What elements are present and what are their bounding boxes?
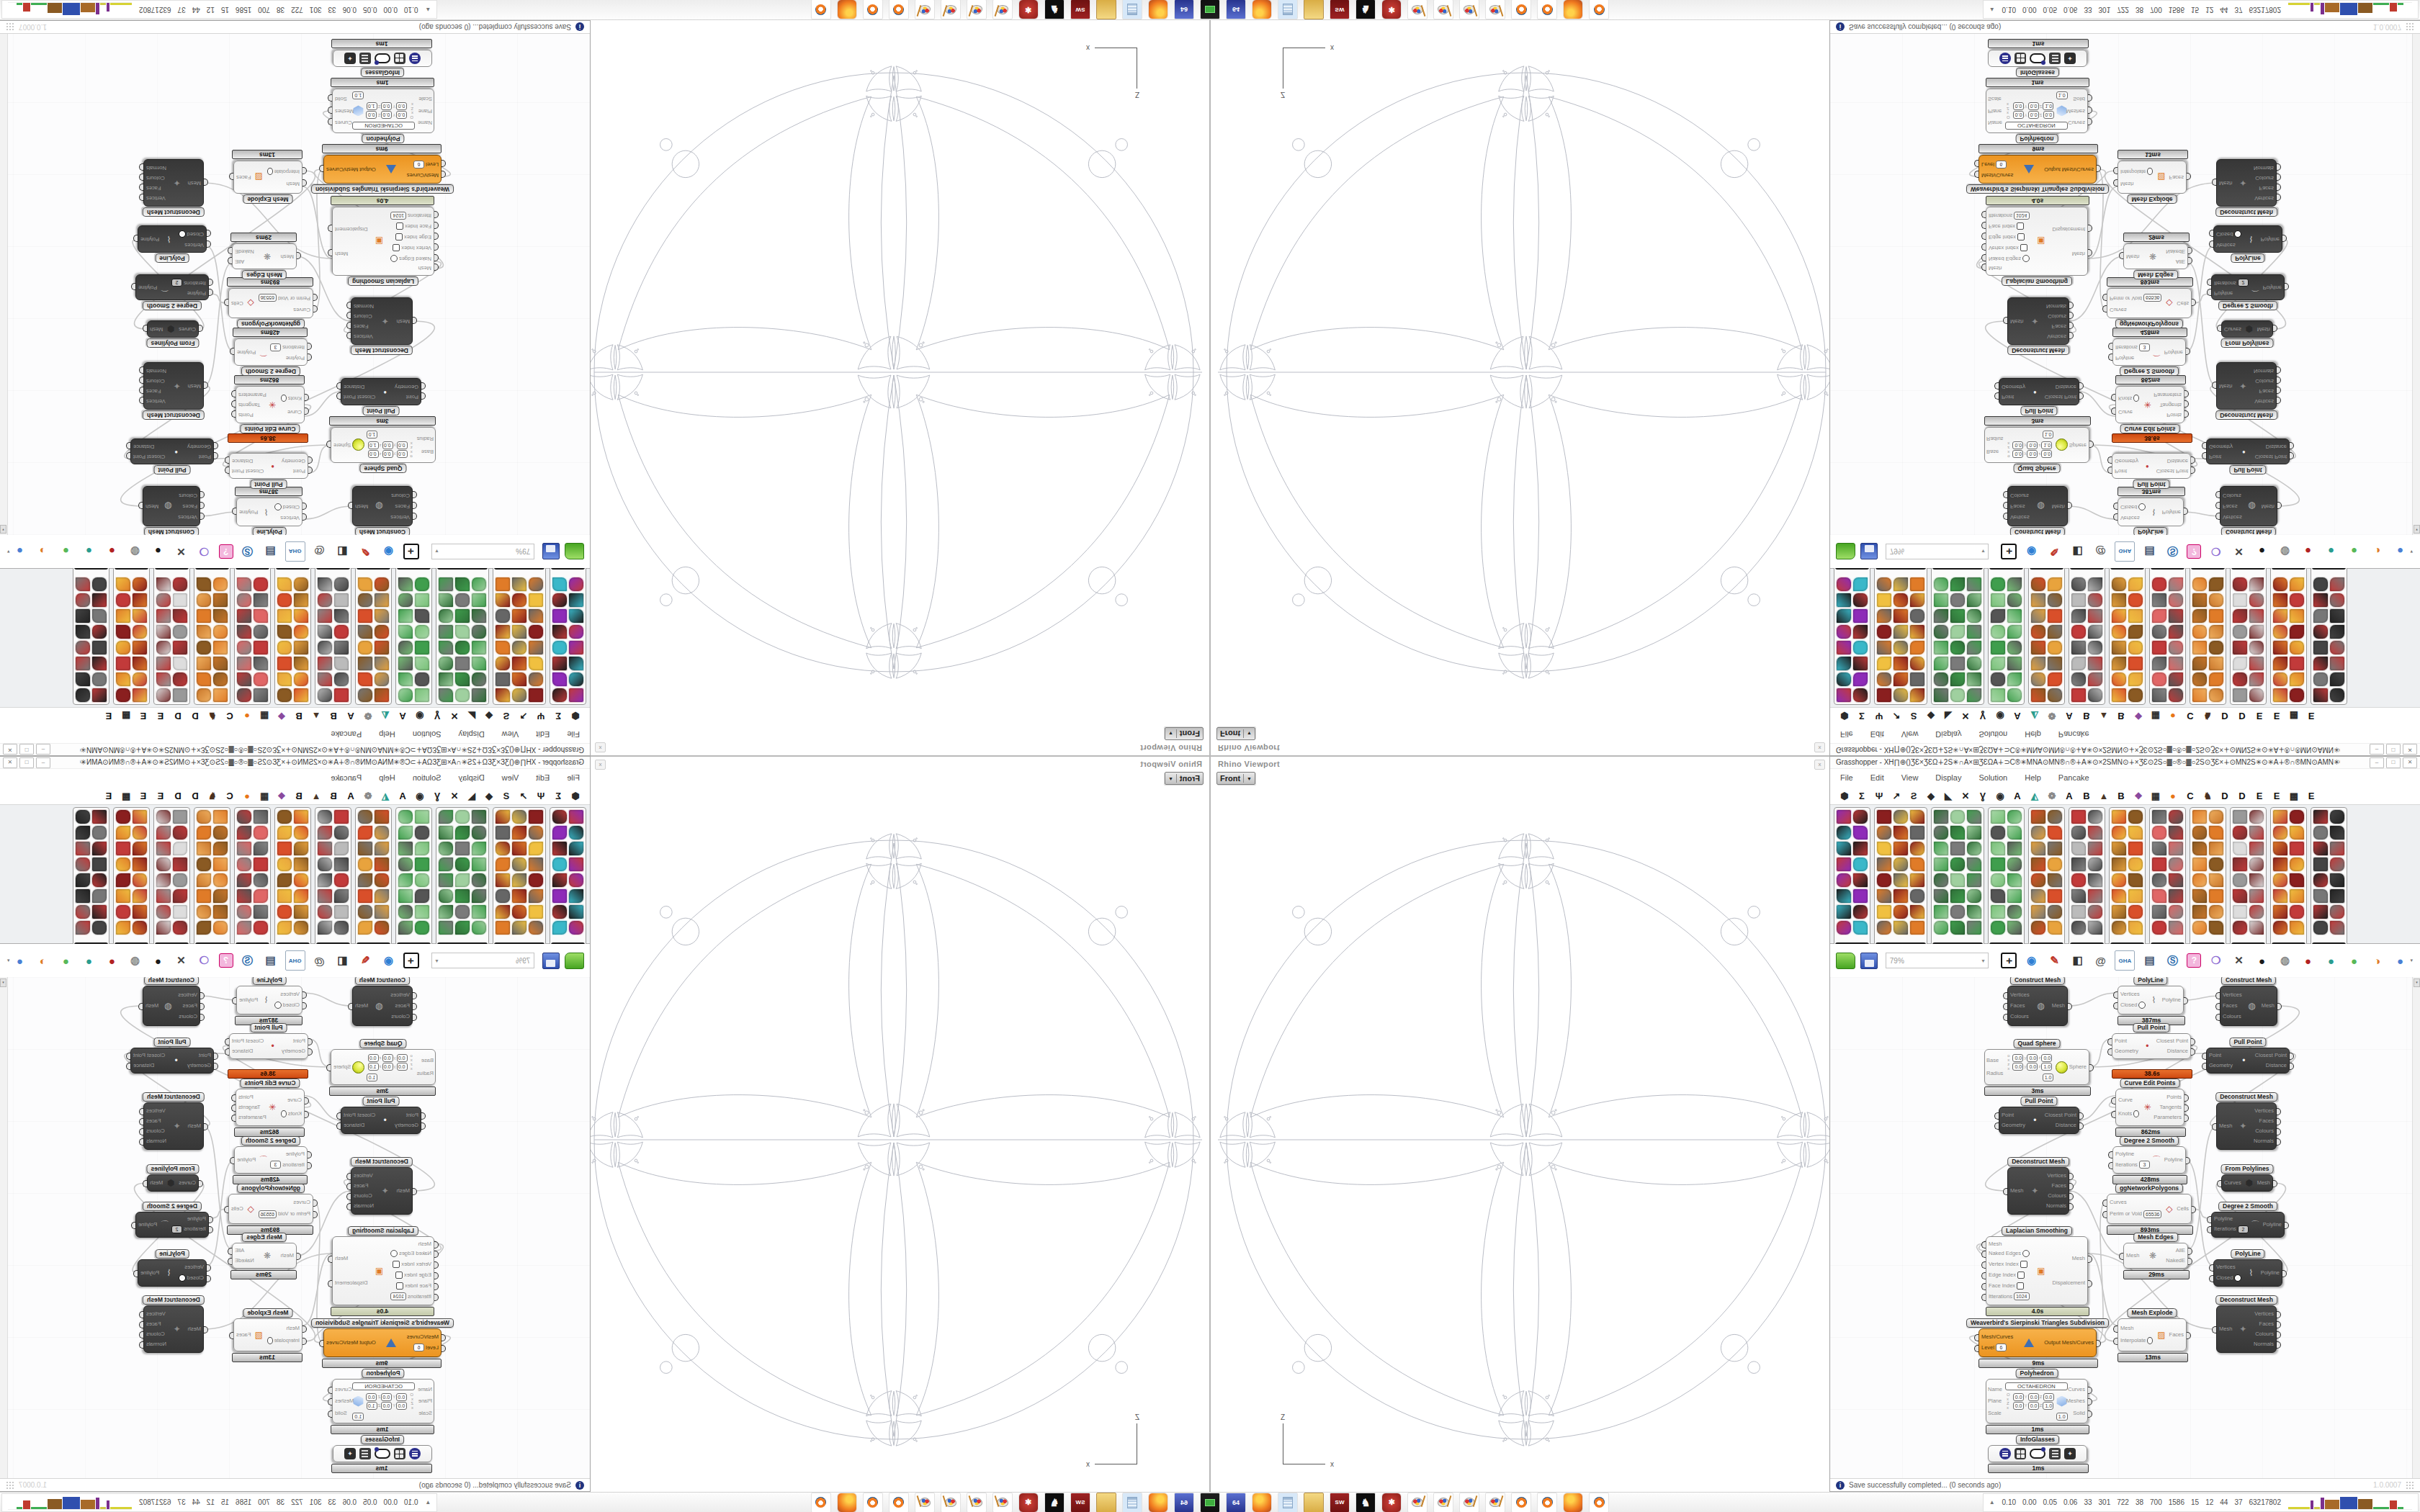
gh-port-faces[interactable]: Faces (2259, 185, 2274, 191)
gh-port-alle[interactable]: AllE (2176, 258, 2185, 264)
palette-icon[interactable] (1909, 577, 1925, 592)
palette-icon[interactable] (2249, 920, 2264, 935)
palette-icon[interactable] (1909, 593, 1925, 608)
palette-icon[interactable] (568, 857, 584, 872)
gh-canvas[interactable]: Construct MeshVerticesFacesColours◍MeshQ… (7, 33, 590, 535)
gh-port-vertices[interactable]: Vertices (2120, 515, 2146, 521)
plane-value-field[interactable]: 0.0 (382, 451, 393, 459)
plane-value-field[interactable]: 0.0 (2028, 1393, 2039, 1401)
category-tab-icon[interactable]: A (2061, 711, 2078, 722)
palette-icon[interactable] (2087, 672, 2103, 687)
gh-node-label[interactable]: Pull Point (250, 1023, 287, 1032)
canvas-scrollbar[interactable]: ▾ (2412, 977, 2420, 1479)
category-tab-icon[interactable]: ◉ (411, 791, 429, 801)
gh-port-polyline[interactable]: Polyline (2214, 290, 2246, 296)
paint-icon[interactable] (915, 0, 935, 20)
palette-icon[interactable] (236, 608, 252, 624)
palette-icon[interactable] (1933, 920, 1949, 935)
gh-port-base[interactable]: Base (1986, 1058, 2003, 1063)
gh-node-label[interactable]: ggNetworkPolygons (237, 319, 305, 328)
gh-port-iterations[interactable]: Iterations3 (272, 1161, 305, 1169)
gh-node-degree-2-smooth[interactable]: PolylineIterations2⌒Polyline (2211, 274, 2285, 300)
gh-port-level[interactable]: Level6 (1981, 1344, 2013, 1351)
gh-port-mesh[interactable]: Mesh (390, 265, 431, 271)
gh-port-mesh[interactable]: Mesh (390, 1241, 431, 1247)
gh-port-iterations[interactable]: Iterations2 (2214, 1225, 2246, 1233)
gh-port-geometry[interactable]: Geometry (395, 384, 418, 390)
category-tab-icon[interactable]: A (2009, 711, 2026, 722)
gh-node-label[interactable]: Construct Mesh (2010, 977, 2065, 985)
gh-port-closed[interactable]: Closed (179, 230, 204, 238)
palette-icon[interactable] (1852, 904, 1868, 919)
remote-at-icon[interactable]: @ (2092, 543, 2109, 560)
category-tab-icon[interactable]: B (2112, 791, 2130, 801)
palette-icon[interactable] (1966, 593, 1982, 608)
palette-icon[interactable] (1966, 841, 1982, 856)
palette-icon[interactable] (2128, 656, 2143, 671)
palette-icon[interactable] (212, 825, 228, 840)
category-tab-icon[interactable]: E (2251, 791, 2268, 801)
gh-port-geometry[interactable]: Geometry (282, 458, 305, 464)
gh-port-colours[interactable]: Colours (2048, 1193, 2066, 1199)
gh-node-label[interactable]: Construct Mesh (2221, 527, 2276, 535)
palette-icon[interactable] (2329, 688, 2345, 703)
palette-icon[interactable] (2289, 624, 2305, 639)
palette-icon[interactable] (1909, 857, 1925, 872)
palette-icon[interactable] (2151, 825, 2167, 840)
gh-port-mesh[interactable]: Mesh (1989, 1241, 2030, 1247)
category-tab-icon[interactable]: A (2009, 791, 2026, 801)
palette-icon[interactable] (2272, 624, 2288, 639)
menu-item-view[interactable]: View (1901, 773, 1919, 782)
palette-icon[interactable] (212, 593, 228, 608)
gh-port-point[interactable]: Point (2209, 454, 2233, 459)
gh-port-meshes[interactable]: Meshes (2066, 108, 2085, 114)
plane-value-field[interactable]: 0.0 (2027, 1063, 2038, 1071)
palette-icon[interactable] (454, 640, 470, 655)
palette-icon[interactable] (1966, 640, 1982, 655)
gh-port-edge-index[interactable]: Edge Index (1989, 1272, 2030, 1279)
palette-icon[interactable] (212, 624, 228, 639)
gh-node-label[interactable]: Deconstruct Mesh (143, 410, 205, 420)
gh-port-polyline[interactable]: Polyline (2115, 355, 2148, 361)
gh-port-dispalcement[interactable]: Dispalcement (2053, 226, 2085, 232)
palette-icon[interactable] (414, 841, 430, 856)
palette-icon[interactable] (253, 841, 269, 856)
gh-port-parameters[interactable]: Parameters (238, 392, 266, 397)
gift-icon[interactable]: ? (219, 953, 233, 968)
gh-node-label[interactable]: Weaverbird's Sierpinski Triangles Subdiv… (311, 1318, 454, 1328)
gh-port-plane[interactable]: Plane (1988, 1398, 2002, 1404)
gh-node-label[interactable]: Construct Mesh (355, 527, 410, 535)
palette-icon[interactable] (115, 688, 131, 703)
palette-icon[interactable] (374, 873, 390, 888)
gh-port-colours[interactable]: Colours (2255, 378, 2274, 384)
scale-field[interactable]: 1.0 (352, 92, 364, 100)
palette-icon[interactable] (75, 920, 91, 935)
palette-icon[interactable] (2087, 920, 2103, 935)
palette-icon[interactable] (511, 593, 527, 608)
gh-port-plane[interactable]: Plane (418, 108, 432, 114)
palette-icon[interactable] (374, 593, 390, 608)
gh-port-closed[interactable]: Closed (179, 1274, 204, 1282)
gh-port-plane[interactable]: Plane (418, 1398, 432, 1404)
palette-icon[interactable] (471, 920, 487, 935)
gh-port-faces[interactable]: Faces (390, 1003, 410, 1009)
palette-icon[interactable] (528, 825, 544, 840)
category-tab-icon[interactable]: ✕ (1957, 791, 1974, 801)
plane-value-field[interactable]: 0.0 (2012, 451, 2023, 459)
palette-icon[interactable] (1950, 809, 1966, 824)
palette-icon[interactable] (2007, 809, 2022, 824)
gh-port-meshes[interactable]: Meshes (335, 108, 354, 114)
palette-icon[interactable] (1950, 825, 1966, 840)
palette-icon[interactable] (2087, 888, 2103, 904)
gh-port-vertices[interactable]: Vertices (2120, 991, 2146, 997)
palette-icon[interactable] (1893, 656, 1909, 671)
palette-icon[interactable] (2087, 825, 2103, 840)
palette-icon[interactable] (277, 640, 292, 655)
gh-port-naked-edges[interactable]: Naked Edges (1989, 1250, 2030, 1257)
palette-icon[interactable] (293, 888, 309, 904)
gh-port-faces[interactable]: Faces (2010, 1003, 2030, 1009)
palette-icon[interactable] (2007, 888, 2022, 904)
solidworks-icon[interactable]: SW (1070, 0, 1090, 20)
palette-icon[interactable] (1836, 640, 1852, 655)
palette-icon[interactable] (1836, 888, 1852, 904)
gh-port-polyline[interactable]: Polyline (174, 290, 206, 296)
palette-icon[interactable] (2007, 688, 2022, 703)
gh-port-vertices[interactable]: Vertices (2223, 514, 2242, 520)
gem-green-icon[interactable]: ● (58, 543, 75, 560)
gh-port-distance[interactable]: Distance (133, 1063, 154, 1068)
palette-icon[interactable] (568, 904, 584, 919)
palette-icon[interactable] (357, 624, 373, 639)
palette-icon[interactable] (236, 640, 252, 655)
palette-icon[interactable] (2249, 608, 2264, 624)
gh-port-curves[interactable]: Curves (179, 1180, 196, 1186)
palette-icon[interactable] (333, 809, 349, 824)
index-box-field[interactable] (395, 233, 403, 240)
palette-icon[interactable] (2030, 920, 2046, 935)
sketch-pen-icon[interactable]: ✎ (2045, 952, 2063, 969)
palette-icon[interactable] (2111, 920, 2127, 935)
gh-port-geometry[interactable]: Geometry (187, 444, 211, 449)
category-tab-icon[interactable]: B (325, 711, 342, 722)
plane-value-field[interactable]: 1.0 (367, 103, 377, 111)
palette-icon[interactable] (1893, 640, 1909, 655)
category-tab-icon[interactable]: D (169, 791, 187, 801)
palette-icon[interactable] (1990, 920, 2006, 935)
category-tab-icon[interactable]: ◣ (1940, 711, 1957, 722)
palette-icon[interactable] (438, 577, 454, 592)
palette-icon[interactable] (2313, 577, 2329, 592)
palette-icon[interactable] (2289, 920, 2305, 935)
gh-port-point[interactable]: Point (395, 1112, 418, 1118)
palette-icon[interactable] (1909, 825, 1925, 840)
palette-icon[interactable] (2111, 809, 2127, 824)
plane-value-field[interactable]: 0.0 (367, 112, 377, 120)
palette-icon[interactable] (552, 873, 568, 888)
palette-icon[interactable] (398, 904, 413, 919)
paint-icon[interactable] (941, 1493, 961, 1512)
palette-icon[interactable] (398, 888, 413, 904)
palette-icon[interactable] (2007, 841, 2022, 856)
palette-icon[interactable] (1950, 873, 1966, 888)
palette-icon[interactable] (2128, 688, 2143, 703)
palette-icon[interactable] (471, 857, 487, 872)
gh-node-deconstruct-mesh[interactable]: Mesh✦VerticesFacesColoursNormals (143, 362, 204, 410)
gh-port-mesh[interactable]: Mesh (2120, 1326, 2153, 1331)
category-tab-icon[interactable]: Ƨ (498, 711, 515, 722)
palette-icon[interactable] (1836, 656, 1852, 671)
gh-node-construct-mesh[interactable]: VerticesFacesColours◍Mesh (352, 486, 413, 526)
palette-icon[interactable] (1990, 857, 2006, 872)
gh-port-geometry[interactable]: Geometry (2209, 444, 2233, 449)
category-tab-icon[interactable]: E (152, 711, 169, 722)
gh-port-mesh-curves[interactable]: Mesh/Curves (407, 1334, 439, 1340)
gh-port-point[interactable]: Point (2002, 1112, 2025, 1118)
palette-icon[interactable] (438, 656, 454, 671)
gh-port-dispalcement[interactable]: Dispalcement (335, 226, 367, 232)
palette-icon[interactable] (75, 888, 91, 904)
gh-port-normals[interactable]: Normals (2254, 368, 2274, 374)
palette-icon[interactable] (2047, 640, 2063, 655)
palette-icon[interactable] (2232, 640, 2248, 655)
palette-icon[interactable] (2151, 624, 2167, 639)
scroll-button[interactable]: ▾ (0, 978, 6, 987)
gha-icon[interactable]: GHA (2115, 541, 2135, 562)
palette-icon[interactable] (156, 608, 171, 624)
gh-port-polyline[interactable]: Polyline (239, 509, 258, 515)
gh-port-vertices[interactable]: Vertices (274, 991, 300, 997)
palette-icon[interactable] (2192, 640, 2208, 655)
sphere-red-icon[interactable]: ● (104, 543, 121, 560)
palette-icon[interactable] (528, 640, 544, 655)
palette-icon[interactable] (414, 577, 430, 592)
plane-value-field[interactable]: 0.0 (2012, 1063, 2023, 1071)
gh-port-curves[interactable]: Curves (179, 326, 196, 332)
menu-item-pancake[interactable]: Pancake (2058, 773, 2089, 782)
palette-icon[interactable] (1909, 640, 1925, 655)
palette-icon[interactable] (528, 809, 544, 824)
palette-icon[interactable] (2071, 672, 2087, 687)
palette-icon[interactable] (2128, 624, 2143, 639)
palette-icon[interactable] (1876, 825, 1892, 840)
gh-port-normals[interactable]: Normals (2254, 1341, 2274, 1347)
palette-icon[interactable] (277, 873, 292, 888)
palette-icon[interactable] (528, 577, 544, 592)
palette-icon[interactable] (568, 809, 584, 824)
preview-eye-icon[interactable]: ◉ (2022, 543, 2040, 560)
resize-grip[interactable] (2406, 23, 2414, 32)
port-value-field[interactable]: 65536 (2143, 1210, 2161, 1218)
palette-icon[interactable] (293, 825, 309, 840)
palette-icon[interactable] (317, 809, 333, 824)
gh-port-cells[interactable]: Cells (231, 1206, 243, 1212)
category-tab-icon[interactable]: B (290, 791, 308, 801)
palette-icon[interactable] (2208, 873, 2224, 888)
palette-icon[interactable] (398, 857, 413, 872)
palette-icon[interactable] (1909, 920, 1925, 935)
menu-item-view[interactable]: View (1901, 730, 1919, 739)
gh-port-closed[interactable]: Closed (274, 1002, 300, 1009)
palette-icon[interactable] (277, 593, 292, 608)
gh-port-name[interactable]: Name (1988, 120, 2002, 126)
palette-icon[interactable] (2168, 656, 2184, 671)
galapagos-icon[interactable]: ✕ (173, 952, 190, 969)
palette-icon[interactable] (438, 873, 454, 888)
palette-icon[interactable] (115, 656, 131, 671)
palette-icon[interactable] (317, 920, 333, 935)
palette-icon[interactable] (528, 624, 544, 639)
palette-icon[interactable] (2272, 873, 2288, 888)
gh-node-label[interactable]: Degree 2 Smooth (2218, 1202, 2277, 1211)
extents-icon[interactable]: ✛ (2001, 544, 2017, 559)
gh-node-label[interactable]: PolyLine (155, 253, 189, 263)
gh-node-label[interactable]: Mesh Edges (242, 270, 287, 279)
category-tab-icon[interactable]: A (394, 711, 411, 722)
palette-icon[interactable] (132, 825, 148, 840)
gh-node-label[interactable]: Polyhedron (2016, 1369, 2058, 1378)
gh-port-mesh[interactable]: Mesh (335, 251, 348, 256)
category-tab-icon[interactable]: ◭ (2026, 711, 2043, 722)
palette-icon[interactable] (454, 888, 470, 904)
gh-node-label[interactable]: ggNetworkPolygons (2115, 319, 2183, 328)
badge-icon[interactable]: ✱ (1381, 1493, 1402, 1512)
gh-port-polyline[interactable]: Polyline (237, 1157, 256, 1163)
palette-icon[interactable] (1876, 809, 1892, 824)
sphere-wire-icon[interactable]: ◍ (127, 543, 144, 560)
palette-icon[interactable] (2168, 904, 2184, 919)
plane-value-field[interactable]: 0.0 (382, 1054, 393, 1062)
gh-node-from-polylines[interactable]: Curves⬢Mesh (147, 1174, 199, 1192)
category-tab-icon[interactable]: ● (2164, 791, 2182, 801)
palette-icon[interactable] (293, 640, 309, 655)
palette-icon[interactable] (438, 809, 454, 824)
gh-port-mesh[interactable]: Mesh (2120, 181, 2153, 186)
palette-icon[interactable] (1990, 656, 2006, 671)
gh-port-polyline[interactable]: Polyline (2214, 1216, 2246, 1222)
balloon-icon[interactable]: ❍ (196, 952, 213, 969)
palette-icon[interactable] (414, 809, 430, 824)
palette-icon[interactable] (528, 873, 544, 888)
port-value-field[interactable]: 6 (1996, 1344, 2007, 1351)
palette-icon[interactable] (357, 672, 373, 687)
palette-icon[interactable] (172, 873, 188, 888)
plane-value-field[interactable]: 1.0 (368, 442, 379, 450)
gh-port-vertices[interactable]: Vertices (2047, 1173, 2066, 1179)
gem-green-icon[interactable]: ● (2345, 543, 2362, 560)
palette-icon[interactable] (2272, 640, 2288, 655)
gh-port-polyline[interactable]: Polyline (138, 284, 157, 290)
gh-port-vertices[interactable]: Vertices (390, 514, 410, 520)
gh-port-mesh[interactable]: Mesh (145, 1003, 158, 1009)
gh-port-points[interactable]: Points (238, 412, 254, 418)
gh-port-perim-or-void[interactable]: Perim or Void65536 (2110, 294, 2161, 302)
palette-icon[interactable] (2151, 593, 2167, 608)
palette-icon[interactable] (2313, 608, 2329, 624)
menu-item-edit[interactable]: Edit (536, 773, 550, 782)
gh-node-label[interactable]: Pull Point (2020, 1097, 2057, 1106)
gh-port-mesh[interactable]: Mesh (2219, 1326, 2232, 1332)
palette-icon[interactable] (471, 624, 487, 639)
palette-icon[interactable] (2151, 608, 2167, 624)
gh-node-degree-2-smooth[interactable]: PolylineIterations3⌒Polyline (2112, 338, 2186, 366)
gh-port-vertices[interactable]: Vertices (2254, 398, 2274, 404)
palette-icon[interactable] (333, 825, 349, 840)
palette-icon[interactable] (414, 640, 430, 655)
category-tab-icon[interactable]: ♞ (2199, 791, 2216, 801)
name-field[interactable]: OCTAHEDRON (2005, 122, 2068, 130)
palette-icon[interactable] (2168, 920, 2184, 935)
gh-node-polyline[interactable]: VerticesClosed⌇Polyline (236, 986, 302, 1014)
gh-node-label[interactable]: PolyLine (2231, 253, 2264, 263)
gh-port-point[interactable]: Point (395, 394, 418, 400)
gh-node-label[interactable]: Deconstruct Mesh (2215, 410, 2277, 420)
toggle-icon[interactable] (281, 395, 287, 402)
palette-icon[interactable] (172, 857, 188, 872)
gh-node-label[interactable]: Weaverbird's Sierpinski Triangles Subdiv… (1966, 1318, 2109, 1328)
gh-node-label[interactable]: Degree 2 Smooth (2120, 1136, 2179, 1146)
close-button[interactable]: ✕ (2403, 744, 2417, 755)
palette-icon[interactable] (357, 608, 373, 624)
blender-icon[interactable] (889, 0, 909, 20)
gh-port-mesh[interactable]: Mesh (150, 1180, 163, 1186)
palette-icon[interactable] (552, 624, 568, 639)
gh-node-from-polylines[interactable]: Curves⬢Mesh (2221, 320, 2273, 338)
palette-icon[interactable] (495, 857, 511, 872)
palette-icon[interactable] (2030, 640, 2046, 655)
palette-icon[interactable] (115, 809, 131, 824)
palette-icon[interactable] (414, 920, 430, 935)
palette-icon[interactable] (2289, 809, 2305, 824)
gh-port-curves[interactable]: Curves (2224, 1180, 2241, 1186)
gh-node-ggnetworkpolygons[interactable]: CurvesPerim or Void65536◇Cells (2107, 1194, 2192, 1224)
category-tab-icon[interactable]: Ƨ (1905, 791, 1922, 801)
palette-icon[interactable] (156, 577, 171, 592)
palette-icon[interactable] (2329, 825, 2345, 840)
gh-port-polyline[interactable]: Polyline (2162, 997, 2181, 1003)
palette-icon[interactable] (2313, 920, 2329, 935)
palette-icon[interactable] (1933, 688, 1949, 703)
gh-port-alle[interactable]: AllE (235, 1248, 244, 1254)
gh-port-faces[interactable]: Faces (354, 1183, 368, 1189)
gh-port-faces[interactable]: Faces (2223, 503, 2242, 509)
gh-port-mesh[interactable]: Mesh (188, 383, 201, 389)
gh-port-vertex-index[interactable]: Vertex Index (390, 244, 431, 251)
gh-port-closest-point[interactable]: Closest Point (232, 468, 264, 474)
plane-value-field[interactable]: 0.0 (382, 442, 393, 450)
plane-value-field[interactable]: 0.0 (2043, 112, 2054, 120)
palette-icon[interactable] (495, 640, 511, 655)
palette-icon[interactable] (438, 608, 454, 624)
palette-icon[interactable] (568, 873, 584, 888)
palette-icon[interactable] (1933, 672, 1949, 687)
index-box-field[interactable] (2020, 1261, 2027, 1268)
palette-icon[interactable] (568, 656, 584, 671)
scroll-button[interactable]: ▾ (0, 525, 6, 534)
palette-icon[interactable] (552, 920, 568, 935)
palette-icon[interactable] (357, 577, 373, 592)
palette-icon[interactable] (277, 825, 292, 840)
gh-node-label[interactable]: Deconstruct Mesh (351, 346, 413, 355)
gh-node-label[interactable]: Laplacian Smoothing (348, 276, 418, 286)
palette-icon[interactable] (212, 873, 228, 888)
palette-icon[interactable] (2168, 825, 2184, 840)
gh-port-faces[interactable]: Faces (2052, 1183, 2066, 1189)
category-tab-icon[interactable]: C (2182, 711, 2199, 722)
